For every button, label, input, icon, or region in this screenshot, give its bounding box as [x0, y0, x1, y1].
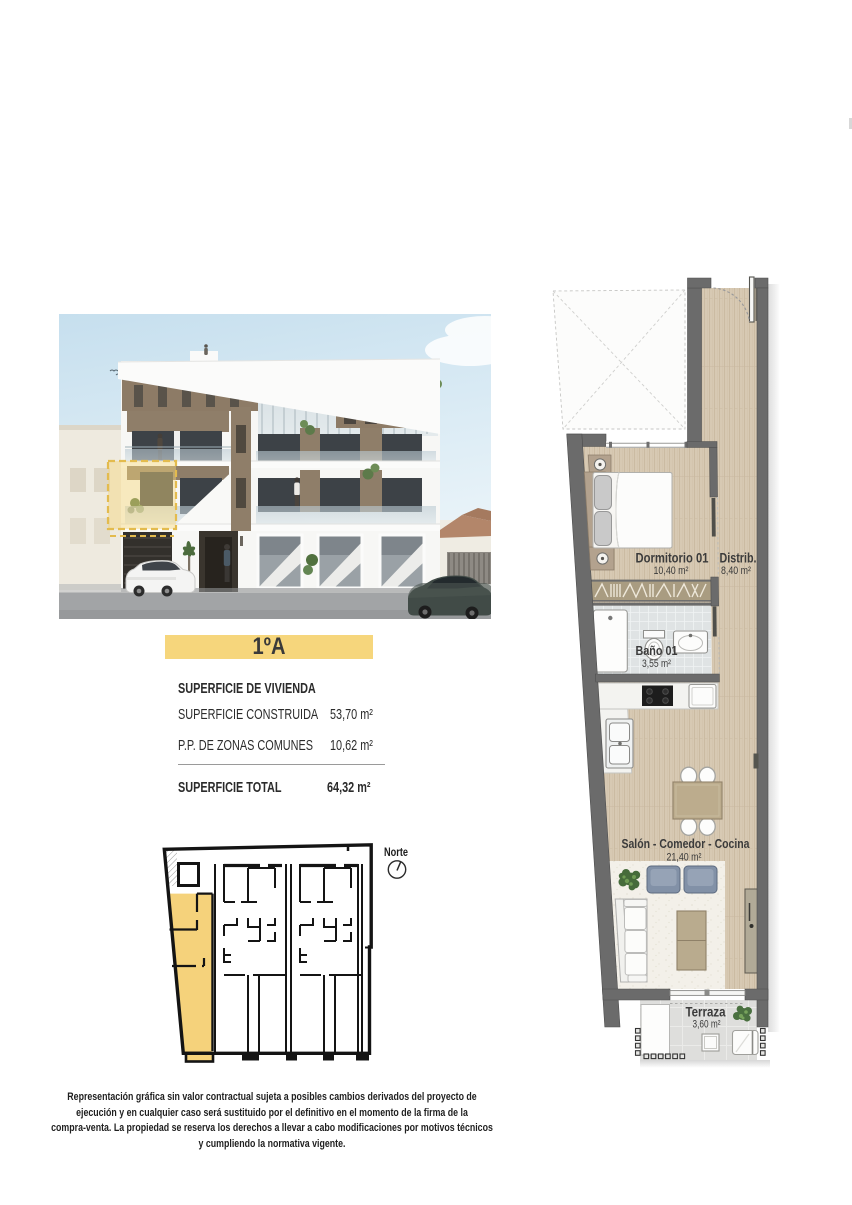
- svg-text:21,40 m²: 21,40 m²: [667, 852, 702, 864]
- svg-text:Dormitorio 01: Dormitorio 01: [636, 551, 709, 566]
- svg-text:10,40 m²: 10,40 m²: [654, 565, 689, 577]
- svg-text:8,40 m²: 8,40 m²: [721, 565, 751, 577]
- svg-text:Baño 01: Baño 01: [636, 643, 678, 658]
- svg-text:Distrib.: Distrib.: [720, 551, 757, 566]
- svg-text:Terraza: Terraza: [686, 1005, 726, 1020]
- svg-text:3,60 m²: 3,60 m²: [693, 1019, 721, 1031]
- svg-text:Salón - Comedor - Cocina: Salón - Comedor - Cocina: [622, 836, 751, 851]
- svg-text:3,55 m²: 3,55 m²: [642, 658, 671, 670]
- svg-text:Norte: Norte: [384, 847, 408, 859]
